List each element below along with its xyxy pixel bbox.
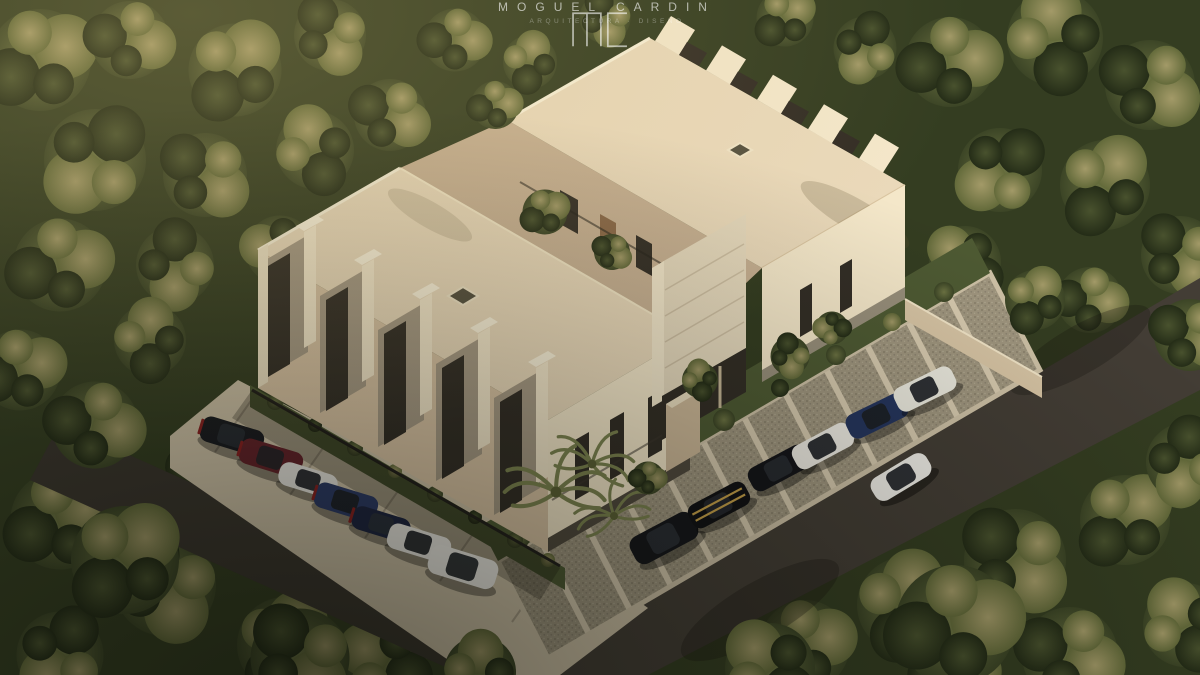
scene-canvas xyxy=(0,0,1200,675)
architectural-render: MOGUEL CARDIN ARQUITECTURA · DISEÑO xyxy=(0,0,1200,675)
vignette-overlay xyxy=(0,0,1200,675)
